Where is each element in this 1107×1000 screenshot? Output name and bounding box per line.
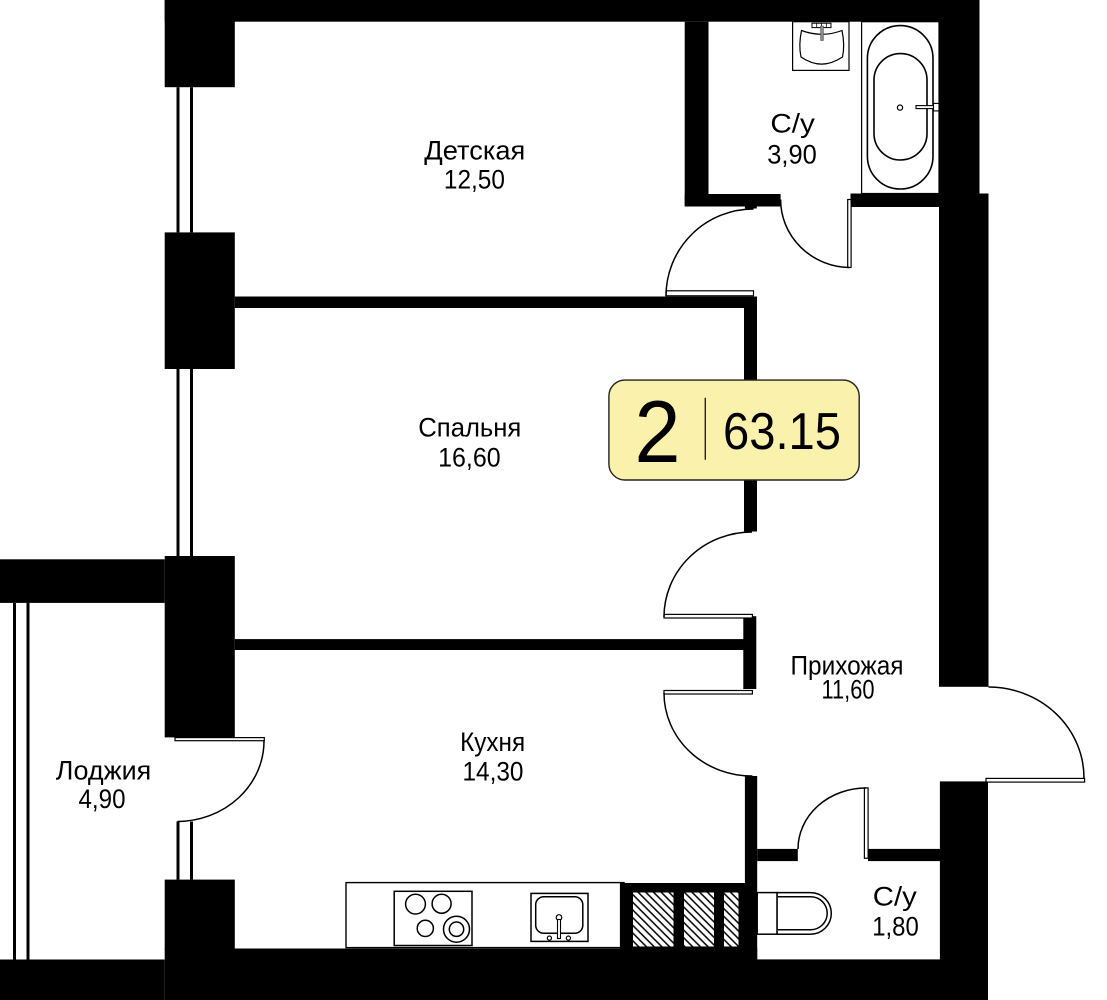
svg-text:2: 2 bbox=[635, 382, 681, 481]
svg-text:12,50: 12,50 bbox=[444, 164, 505, 194]
svg-text:С/у: С/у bbox=[770, 109, 815, 139]
svg-text:63.15: 63.15 bbox=[723, 403, 841, 461]
svg-text:Спальня: Спальня bbox=[418, 413, 521, 443]
svg-text:3,90: 3,90 bbox=[767, 140, 817, 170]
svg-text:Кухня: Кухня bbox=[460, 727, 525, 757]
svg-text:С/у: С/у bbox=[873, 882, 918, 912]
svg-text:16,60: 16,60 bbox=[438, 442, 501, 472]
svg-text:Лоджия: Лоджия bbox=[56, 755, 152, 785]
svg-text:Детская: Детская bbox=[424, 135, 525, 165]
svg-text:11,60: 11,60 bbox=[822, 675, 875, 705]
svg-text:4,90: 4,90 bbox=[79, 784, 126, 814]
svg-text:14,30: 14,30 bbox=[463, 757, 524, 787]
svg-text:1,80: 1,80 bbox=[872, 912, 919, 942]
